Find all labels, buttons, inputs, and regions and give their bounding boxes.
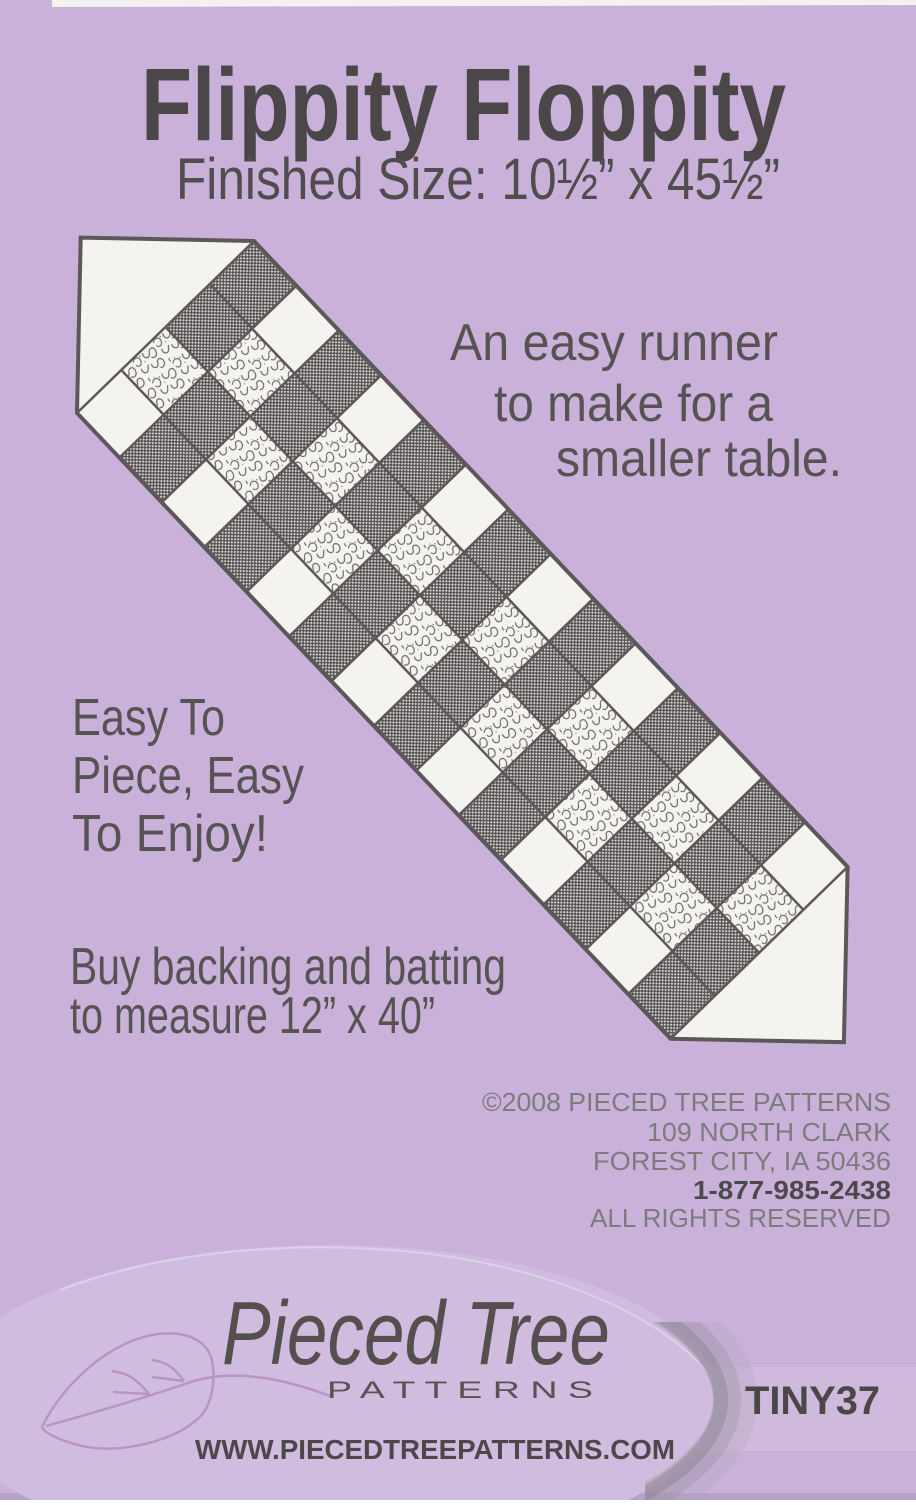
svg-text:Easy To: Easy To [72, 689, 225, 747]
svg-text:WWW.PIECEDTREEPATTERNS.COM: WWW.PIECEDTREEPATTERNS.COM [195, 1434, 675, 1465]
svg-text:Piece, Easy: Piece, Easy [72, 747, 304, 805]
svg-text:FOREST CITY, IA 50436: FOREST CITY, IA 50436 [593, 1146, 891, 1176]
svg-text:to make for a: to make for a [494, 375, 773, 433]
svg-text:Flippity Floppity: Flippity Floppity [141, 47, 786, 162]
svg-text:Finished Size: 10½” x 45½”: Finished Size: 10½” x 45½” [176, 147, 780, 212]
svg-text:to measure 12” x 40”: to measure 12” x 40” [70, 987, 435, 1045]
svg-text:©2008 PIECED TREE PATTERNS: ©2008 PIECED TREE PATTERNS [482, 1087, 891, 1117]
svg-text:Pieced Tree: Pieced Tree [222, 1284, 610, 1384]
svg-text:TINY37: TINY37 [745, 1379, 880, 1423]
svg-text:An easy runner: An easy runner [450, 314, 778, 372]
svg-text:109 NORTH CLARK: 109 NORTH CLARK [647, 1117, 892, 1147]
svg-text:1-877-985-2438: 1-877-985-2438 [693, 1175, 891, 1205]
svg-text:P A T T E R N S: P A T T E R N S [327, 1377, 593, 1404]
svg-text:ALL RIGHTS RESERVED: ALL RIGHTS RESERVED [590, 1203, 891, 1233]
svg-text:smaller table.: smaller table. [556, 430, 842, 488]
svg-text:To Enjoy!: To Enjoy! [72, 805, 268, 863]
